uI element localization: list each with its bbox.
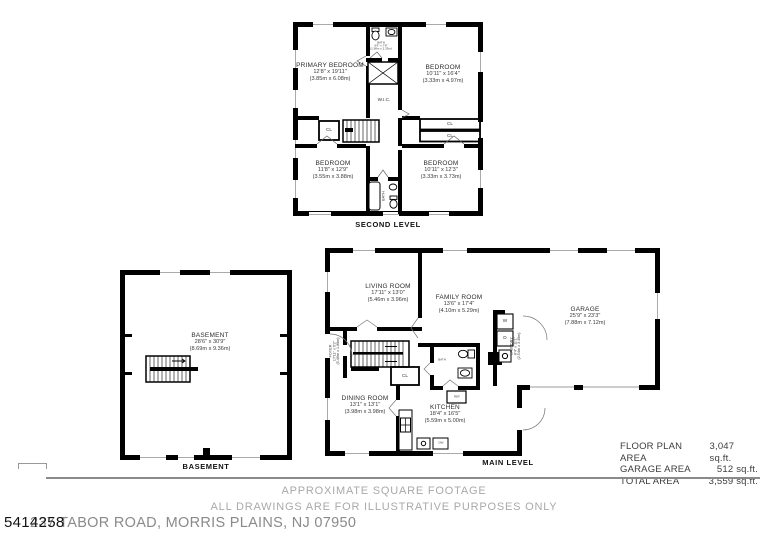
closet-label-cl: CL <box>326 128 332 133</box>
closet-label-cl: CL <box>447 134 453 139</box>
area-label: GARAGE AREA <box>620 464 691 476</box>
room-label-living-room: LIVING ROOM 17'11" x 13'0" (5.46m x 3.96… <box>365 283 411 303</box>
fridge-label: REF <box>454 396 460 399</box>
plan-caption-basement: BASEMENT <box>183 462 230 471</box>
floor-plan-page: PRIMARY BEDROOM 12'8" x 19'11" (3.85m x … <box>0 0 768 542</box>
disclaimer-line-1: APPROXIMATE SQUARE FOOTAGE <box>0 485 768 497</box>
plan-caption-main-level: MAIN LEVEL <box>482 458 533 467</box>
area-row-floor-plan: FLOOR PLAN AREA 3,047 sq.ft. <box>620 441 758 464</box>
plan-caption-second-level: SECOND LEVEL <box>355 220 421 229</box>
room-label-dining-room: DINING ROOM 13'1" x 13'1" (3.98m x 3.98m… <box>342 395 389 415</box>
area-value: 3,047 sq.ft. <box>710 441 759 464</box>
washer-label: W <box>503 319 507 324</box>
room-label-bath: BATH <box>438 359 446 362</box>
disclaimer-line-2: ALL DRAWINGS ARE FOR ILLUSTRATIVE PURPOS… <box>0 501 768 513</box>
divider-line <box>46 477 760 479</box>
room-label-bath-top: BATH 6'6" x 7'8" (1.98m x 2.33m) <box>370 42 392 51</box>
room-label-kitchen: KITCHEN 18'4" x 16'5" (5.59m x 5.00m) <box>425 404 466 424</box>
room-label-garage: GARAGE 25'9" x 23'3" (7.88m x 7.12m) <box>565 306 606 326</box>
property-address: 237 TABOR ROAD, MORRIS PLAINS, NJ 07950 <box>30 515 356 531</box>
dryer-label: D <box>503 336 506 341</box>
room-label-primary-bedroom: PRIMARY BEDROOM 12'8" x 19'11" (3.85m x … <box>296 62 364 82</box>
room-label-foyer: FOYER 17'11" x 6'2" (5.46m x 1.88m) <box>329 337 341 364</box>
closet-label-cl: CL <box>402 374 408 379</box>
room-label-family-room: FAMILY ROOM 13'6" x 17'4" (4.10m x 5.29m… <box>436 294 483 314</box>
main-level-plan: LIVING ROOM 17'11" x 13'0" (5.46m x 3.96… <box>325 248 660 472</box>
room-label-bedroom-top-right: BEDROOM 10'11" x 16'4" (3.33m x 4.97m) <box>423 64 464 84</box>
area-summary: FLOOR PLAN AREA 3,047 sq.ft. GARAGE AREA… <box>620 441 758 487</box>
dishwasher-label: DW <box>438 442 443 445</box>
room-label-laundry: LAUNDRY 8'4" x 11'1" (2.54m x 3.38m) <box>510 332 522 359</box>
closet-label-wic: W.I.C. <box>378 98 391 103</box>
room-label-basement: BASEMENT 28'6" x 30'9" (8.69m x 9.36m) <box>190 332 231 352</box>
closet-label-cl: CL <box>447 122 453 127</box>
mls-number-watermark: 5414258 <box>4 514 65 531</box>
basement-plan: BASEMENT 28'6" x 30'9" (8.69m x 9.36m) B… <box>120 270 292 476</box>
area-value: 512 sq.ft. <box>717 464 758 476</box>
scale-bar <box>18 463 47 469</box>
room-label-bedroom-bottom-left: BEDROOM 11'8" x 12'9" (3.55m x 3.88m) <box>313 160 354 180</box>
area-row-garage: GARAGE AREA 512 sq.ft. <box>620 464 758 476</box>
second-level-plan: PRIMARY BEDROOM 12'8" x 19'11" (3.85m x … <box>293 22 483 232</box>
room-label-bedroom-bottom-right: BEDROOM 10'11" x 12'3" (3.33m x 3.73m) <box>421 160 462 180</box>
area-label: FLOOR PLAN AREA <box>620 441 710 464</box>
room-label-bath-bottom: BATH <box>382 191 386 201</box>
